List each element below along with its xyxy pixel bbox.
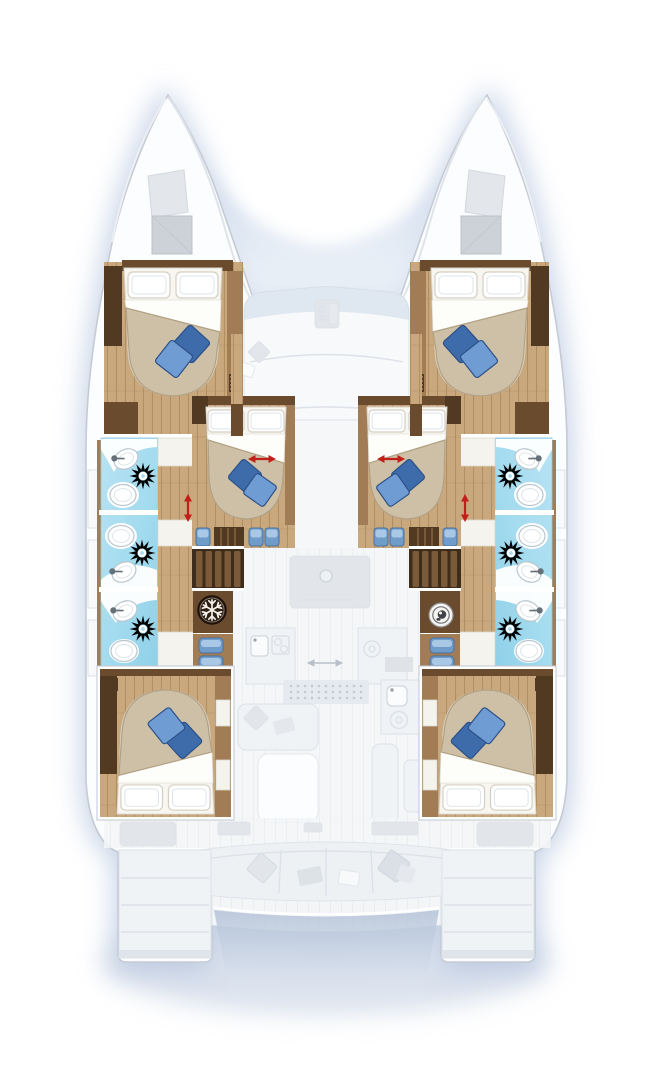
port-mid-cabin	[192, 396, 295, 548]
snowflake-freezer-icon	[198, 596, 226, 624]
side-lockers	[88, 440, 102, 676]
galley-sink	[251, 636, 268, 656]
step-cushion	[196, 528, 210, 546]
washing-machine-icon	[429, 603, 453, 627]
port-stairs	[192, 546, 244, 591]
island-sink	[320, 570, 332, 582]
forward-double-bed	[124, 268, 222, 396]
saloon-table	[258, 754, 318, 822]
transom-shadow	[214, 910, 439, 1007]
port-aft-cabin	[97, 666, 234, 820]
toilet	[110, 485, 136, 506]
nav-seat	[372, 744, 398, 824]
port-bathrooms	[99, 438, 160, 670]
bow-skylight	[148, 170, 188, 218]
galley-counter-port	[246, 628, 295, 684]
passage-cabinet	[104, 402, 138, 434]
port-corridor	[158, 438, 196, 670]
wardrobe	[104, 266, 122, 346]
floor-plan-page	[0, 0, 653, 1080]
toilet	[108, 526, 134, 547]
aft-double-bed	[117, 690, 214, 814]
side-deck	[231, 334, 243, 404]
galley-mat	[283, 680, 369, 704]
galley-sink-2	[387, 686, 407, 706]
cabinet-sink	[199, 638, 223, 653]
step-cushion	[265, 528, 279, 546]
port-forward-cabin	[104, 260, 243, 404]
catamaran-floor-plan	[0, 0, 653, 1080]
mid-double-bed	[206, 407, 286, 519]
wardrobe	[100, 676, 117, 774]
toilet	[111, 641, 137, 662]
saloon-sofa	[238, 704, 318, 750]
saloon-aisle	[295, 420, 358, 550]
step-cushion	[249, 528, 263, 546]
